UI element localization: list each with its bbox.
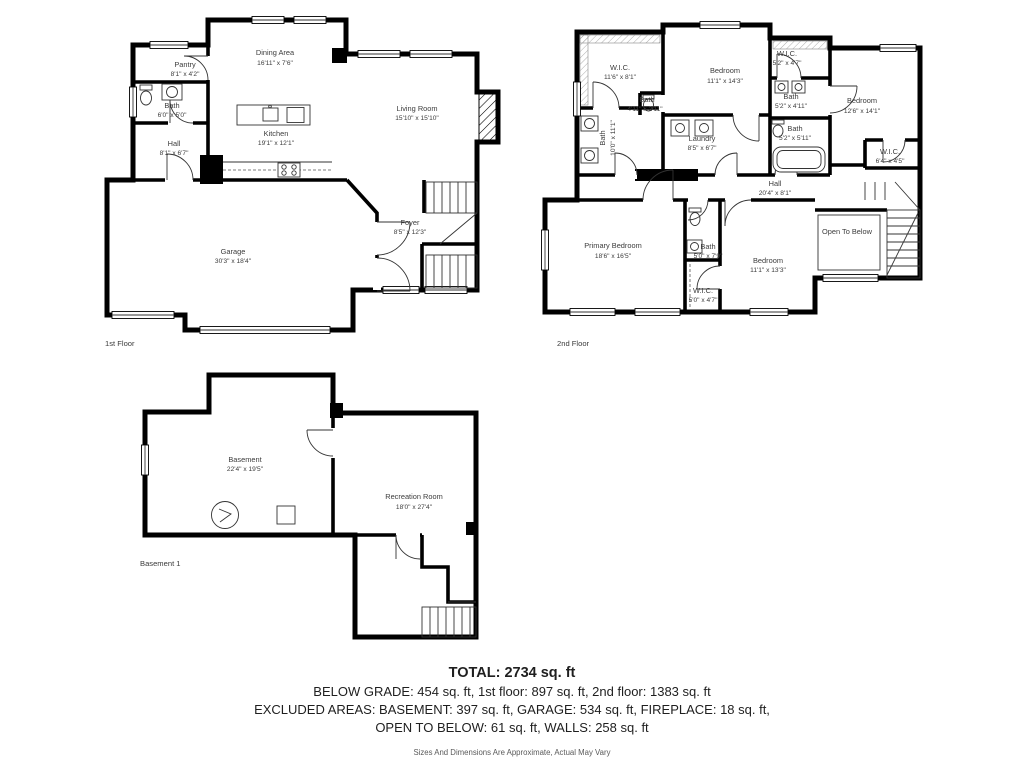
room-dims-living: 15'10" x 15'10" — [395, 115, 439, 122]
room-label-wic2: W.I.C. — [777, 49, 797, 58]
chimney-block — [200, 155, 223, 184]
wall-junction-block — [330, 403, 343, 418]
room-label-bath3: Bath — [787, 124, 802, 133]
room-label-laundry: Laundry — [689, 134, 716, 143]
floor-label-second: 2nd Floor — [557, 339, 590, 348]
room-dims-wic2: 5'2" x 4'7" — [773, 60, 802, 67]
sink — [167, 87, 178, 98]
room-label-bath-small: Bath — [639, 95, 654, 104]
open-to-below-outline — [818, 215, 880, 270]
basement-labels: Basement 22'4" x 19'5" Recreation Room 1… — [140, 455, 443, 568]
room-label-wic1: W.I.C. — [610, 63, 630, 72]
room-label-bath: Bath — [164, 101, 179, 110]
room-label-wic3: W.I.C. — [880, 147, 900, 156]
kitchen-counter — [223, 162, 332, 177]
room-label-pantry: Pantry — [174, 60, 196, 69]
first-floor-labels: Pantry 8'1" x 4'2" Bath 6'0" x 5'0" Hall… — [105, 48, 439, 348]
room-label-hall: Hall — [168, 139, 181, 148]
stove — [278, 163, 300, 177]
first-floor-walls — [107, 20, 498, 330]
floor-label-basement: Basement 1 — [140, 559, 181, 568]
floor-label-first: 1st Floor — [105, 339, 135, 348]
room-label-dining: Dining Area — [256, 48, 295, 57]
room-label-bath-main: Bath — [598, 130, 607, 145]
room-label-primary: Primary Bedroom — [584, 241, 642, 250]
room-dims-wic1: 11'6" x 8'1" — [604, 74, 637, 81]
kitchen-island — [237, 105, 310, 125]
furnace — [277, 506, 295, 524]
room-label-bedroom1: Bedroom — [710, 66, 740, 75]
room-dims-hall2: 20'4" x 8'1" — [759, 190, 792, 197]
basement-door-gaps — [329, 428, 420, 539]
water-heater — [212, 502, 239, 529]
room-label-recreation: Recreation Room — [385, 492, 443, 501]
room-label-foyer: Foyer — [401, 218, 420, 227]
wall-junction-block — [466, 522, 476, 535]
basement-windows — [142, 445, 149, 475]
basement-fixtures — [212, 502, 296, 529]
first-floor-plan: Pantry 8'1" x 4'2" Bath 6'0" x 5'0" Hall… — [100, 12, 505, 352]
room-dims-dining: 16'11" x 7'6" — [257, 60, 293, 67]
wall-junction-block — [332, 48, 347, 63]
room-dims-bath-small: 4'11" x 2'11" — [627, 106, 663, 113]
room-label-bath2: Bath — [783, 92, 798, 101]
fireplace-hatch — [479, 94, 498, 140]
room-dims-garage: 30'3" x 18'4" — [215, 258, 252, 265]
room-dims-bath2: 5'2" x 4'11" — [775, 103, 808, 110]
washer — [671, 120, 689, 136]
room-label-basement: Basement — [228, 455, 261, 464]
room-dims-wic4: 5'0" x 4'7" — [689, 297, 718, 304]
room-label-bedroom2: Bedroom — [847, 96, 877, 105]
room-dims-foyer: 8'5" x 12'3" — [394, 229, 427, 236]
room-dims-bedroom1: 11'1" x 14'3" — [707, 78, 743, 85]
room-label-garage: Garage — [221, 247, 246, 256]
room-label-bedroom3: Bedroom — [753, 256, 783, 265]
room-dims-recreation: 18'0" x 27'4" — [396, 504, 433, 511]
room-dims-bedroom2: 12'6" x 14'1" — [844, 108, 881, 115]
floorplan-page: { "colors": { "wall": "#000000", "label_… — [0, 0, 1024, 768]
room-label-hall2: Hall — [769, 179, 782, 188]
room-dims-bath4: 5'0" x 7'9" — [694, 253, 723, 260]
electric-bolt-icon — [219, 509, 231, 522]
basement-stairs — [422, 602, 476, 637]
basement-plan: Basement 22'4" x 19'5" Recreation Room 1… — [135, 370, 485, 650]
room-dims-primary: 18'6" x 16'5" — [595, 253, 632, 260]
area-line-3: OPEN TO BELOW: 61 sq. ft, WALLS: 258 sq.… — [0, 719, 1024, 737]
room-dims-kitchen: 19'1" x 12'1" — [258, 140, 295, 147]
area-summary: TOTAL: 2734 sq. ft BELOW GRADE: 454 sq. … — [0, 664, 1024, 757]
total-area-text: TOTAL: 2734 sq. ft — [0, 664, 1024, 683]
room-dims-laundry: 8'5" x 6'7" — [688, 145, 717, 152]
room-dims-hall: 8'1" x 6'7" — [160, 150, 189, 157]
room-label-living: Living Room — [396, 104, 437, 113]
second-floor-plan: W.I.C. 11'6" x 8'1" Bath 10'0" x 11'1" B… — [535, 20, 930, 355]
toilet-tank — [140, 85, 152, 90]
room-dims-bath-main: 10'0" x 11'1" — [610, 120, 617, 156]
room-dims-bedroom3: 11'1" x 13'3" — [750, 267, 786, 274]
first-floor-door-gaps — [165, 56, 381, 290]
disclaimer-text: Sizes And Dimensions Are Approximate, Ac… — [0, 748, 1024, 757]
room-dims-basement: 22'4" x 19'5" — [227, 466, 264, 473]
room-label-bath4: Bath — [700, 242, 715, 251]
toilet — [141, 91, 152, 105]
room-dims-wic3: 6'4" x 4'5" — [876, 158, 905, 165]
room-label-kitchen: Kitchen — [264, 129, 289, 138]
area-line-2: EXCLUDED AREAS: BASEMENT: 397 sq. ft, GA… — [0, 701, 1024, 719]
first-floor-stairs — [426, 182, 477, 288]
room-dims-bath: 6'0" x 5'0" — [158, 112, 187, 119]
room-dims-pantry: 8'1" x 4'2" — [171, 71, 200, 78]
room-label-open-to-below: Open To Below — [822, 227, 873, 236]
room-label-wic4: W.I.C. — [693, 286, 713, 295]
room-dims-bath3: 5'2" x 5'11" — [779, 135, 812, 142]
area-line-1: BELOW GRADE: 454 sq. ft, 1st floor: 897 … — [0, 683, 1024, 701]
